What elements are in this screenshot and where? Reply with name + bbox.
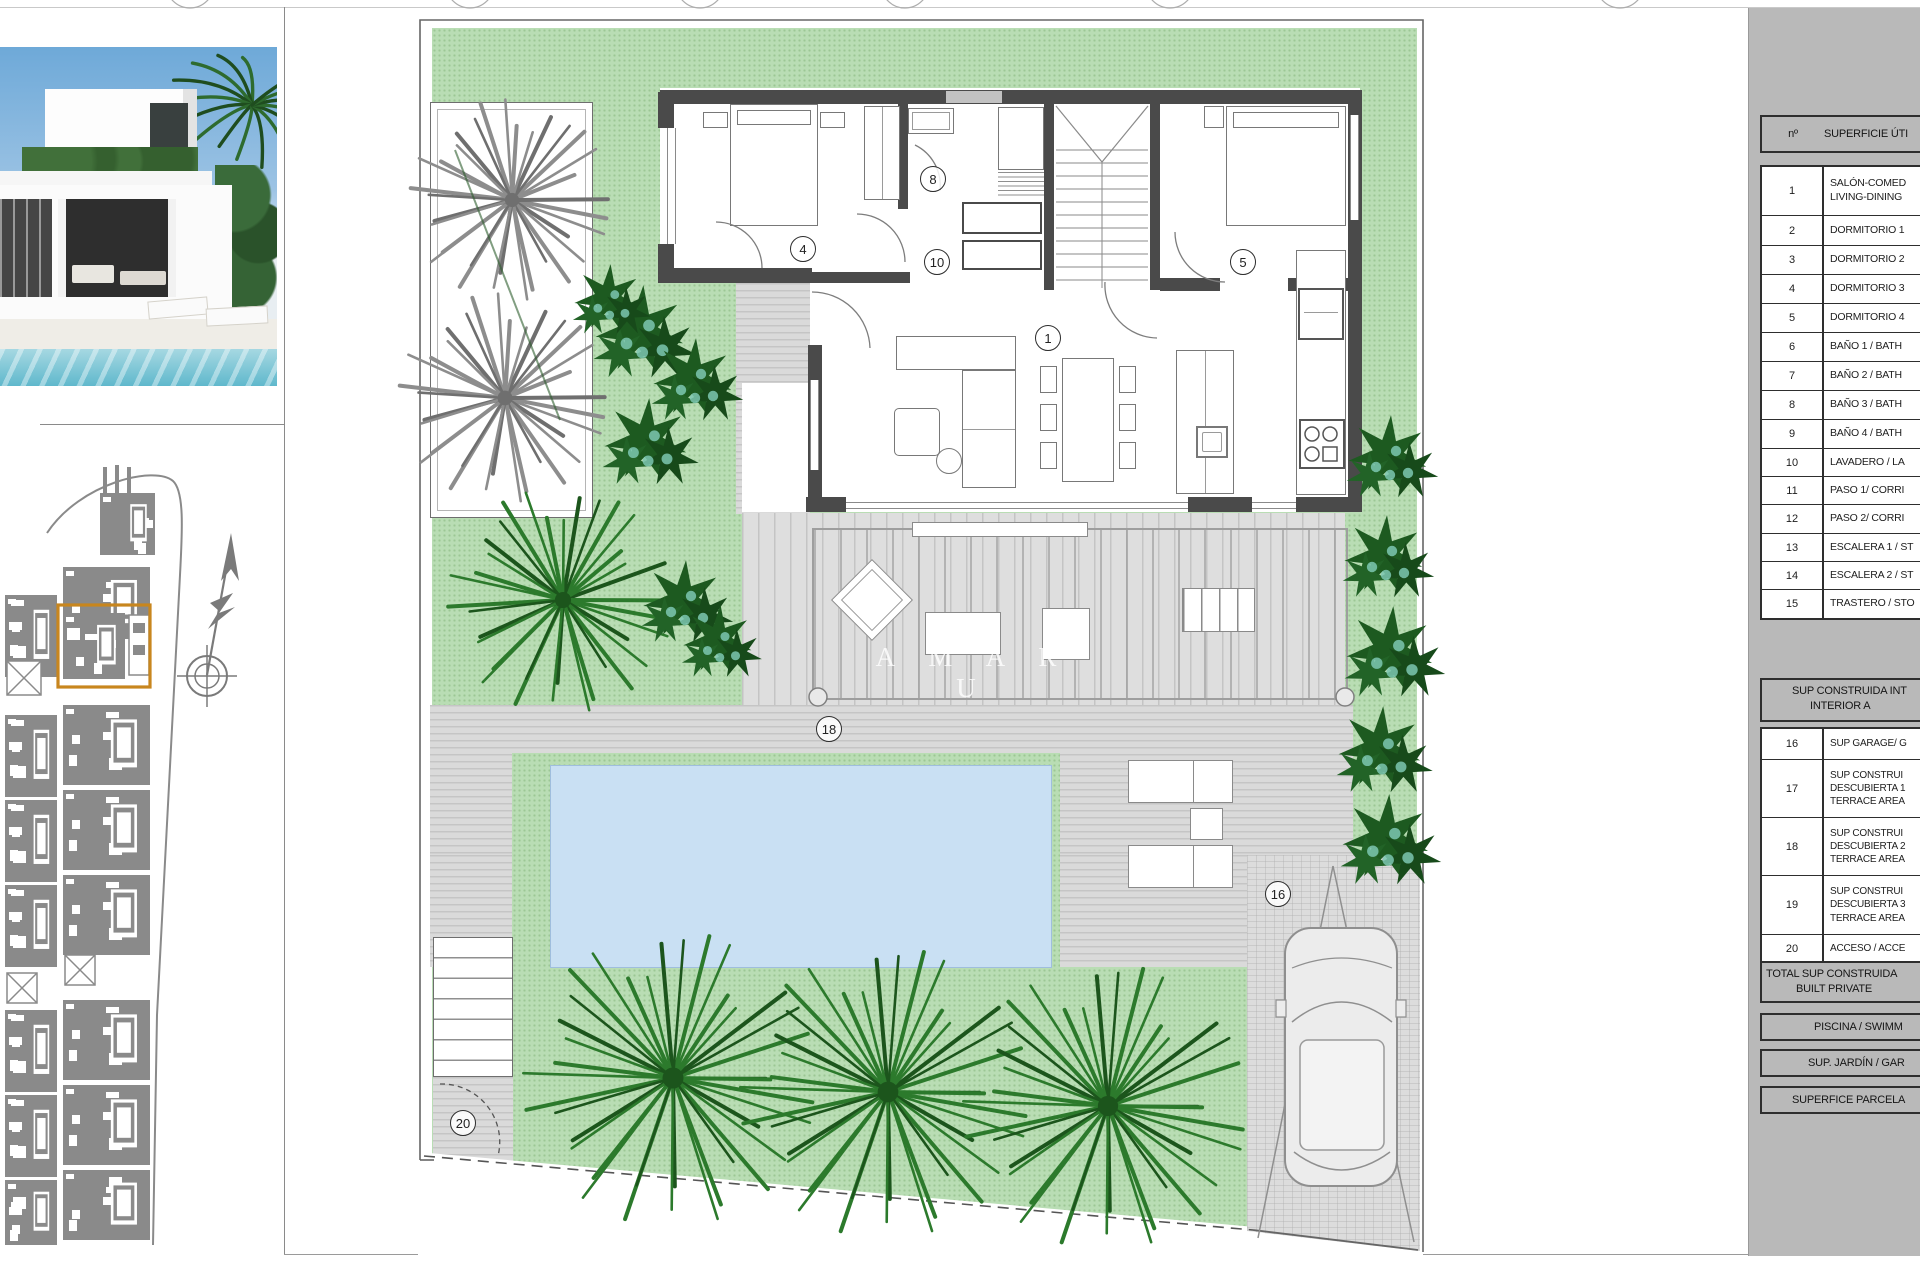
row-label: DORMITORIO 3 bbox=[1830, 282, 1920, 296]
row-label: SALÓN-COMED bbox=[1830, 177, 1920, 191]
table-header-title: SUPERFICIE ÚTI bbox=[1824, 127, 1908, 142]
wardrobe bbox=[864, 106, 900, 200]
room-number-label: 10 bbox=[924, 249, 950, 275]
row-label: TERRACE AREA bbox=[1830, 912, 1920, 925]
row-label: TERRACE AREA bbox=[1830, 853, 1920, 866]
armchair bbox=[894, 408, 940, 456]
row-number: 15 bbox=[1762, 590, 1824, 618]
row-number: 5 bbox=[1762, 304, 1824, 332]
row-number: 19 bbox=[1762, 876, 1824, 934]
box-line: SUP CONSTRUIDA INT bbox=[1762, 684, 1920, 699]
photo-terrace-sofa bbox=[72, 265, 114, 283]
table-row: 6BAÑO 1 / BATH bbox=[1762, 332, 1920, 361]
outdoor-dining-set bbox=[1182, 588, 1255, 632]
table-footer-box: PISCINA / SWIMM bbox=[1760, 1013, 1920, 1041]
table-row: 5DORMITORIO 4 bbox=[1762, 303, 1920, 332]
table-row: 19SUP CONSTRUIDESCUBIERTA 3TERRACE AREA bbox=[1762, 875, 1920, 934]
wall-stairs-east bbox=[1150, 104, 1160, 290]
table-row: 8BAÑO 3 / BATH bbox=[1762, 390, 1920, 419]
room-number-label: 16 bbox=[1265, 881, 1291, 907]
box-line: TOTAL SUP CONSTRUIDA bbox=[1762, 967, 1920, 982]
room-number-label: 4 bbox=[790, 236, 816, 262]
row-label: PASO 2/ CORRI bbox=[1830, 512, 1920, 526]
nightstand bbox=[1204, 106, 1224, 128]
table-row: 9BAÑO 4 / BATH bbox=[1762, 419, 1920, 448]
shower bbox=[998, 107, 1044, 170]
room-number-label: 20 bbox=[450, 1110, 476, 1136]
row-number: 12 bbox=[1762, 505, 1824, 533]
dining-chair bbox=[1119, 404, 1136, 431]
table-row: 3DORMITORIO 2 bbox=[1762, 245, 1920, 274]
table-total-box: TOTAL SUP CONSTRUIDABUILT PRIVATE bbox=[1760, 961, 1920, 1003]
table-row: 13ESCALERA 1 / ST bbox=[1762, 533, 1920, 561]
nightstand bbox=[820, 112, 845, 128]
table-row: 17SUP CONSTRUIDESCUBIERTA 1TERRACE AREA bbox=[1762, 759, 1920, 817]
row-label: TRASTERO / STO bbox=[1830, 597, 1920, 611]
table-section2-header: SUP CONSTRUIDA INTINTERIOR A bbox=[1760, 678, 1920, 722]
row-label: DORMITORIO 2 bbox=[1830, 253, 1920, 267]
sun-lounger bbox=[1128, 760, 1233, 803]
amaru-watermark: A M A R U bbox=[868, 642, 1078, 678]
row-label: SUP CONSTRUI bbox=[1830, 885, 1920, 898]
dining-chair bbox=[1040, 442, 1057, 469]
wc-closet bbox=[962, 202, 1042, 234]
window-living-west bbox=[810, 380, 819, 470]
planter-bed bbox=[430, 102, 593, 518]
table-header: nº SUPERFICIE ÚTI bbox=[1760, 115, 1920, 153]
room-number-label: 5 bbox=[1230, 249, 1256, 275]
glass-window bbox=[1252, 502, 1296, 509]
row-number: 14 bbox=[1762, 562, 1824, 589]
sheet-bottom-border bbox=[284, 1254, 1920, 1255]
swimming-pool bbox=[550, 765, 1052, 968]
table-row: 16SUP GARAGE/ G bbox=[1762, 729, 1920, 759]
kitchen-island bbox=[1176, 350, 1234, 494]
table-row: 11PASO 1/ CORRI bbox=[1762, 476, 1920, 504]
row-number: 8 bbox=[1762, 391, 1824, 419]
row-number: 16 bbox=[1762, 729, 1824, 759]
wall-north-opening bbox=[946, 91, 1002, 103]
bed-pillow bbox=[737, 110, 811, 125]
photo-column bbox=[58, 199, 66, 297]
row-label: DESCUBIERTA 1 bbox=[1830, 782, 1920, 795]
room-number-label: 18 bbox=[816, 716, 842, 742]
sofa-chaise bbox=[962, 370, 1016, 488]
nightstand bbox=[703, 112, 728, 128]
row-label: BAÑO 1 / BATH bbox=[1830, 340, 1920, 354]
row-number: 13 bbox=[1762, 534, 1824, 561]
row-label: ESCALERA 2 / ST bbox=[1830, 569, 1920, 583]
dining-table bbox=[1062, 358, 1114, 482]
row-label: SUP CONSTRUI bbox=[1830, 769, 1920, 782]
row-label: DESCUBIERTA 3 bbox=[1830, 898, 1920, 911]
table-row: 7BAÑO 2 / BATH bbox=[1762, 361, 1920, 390]
photo-glass-wall bbox=[0, 199, 52, 297]
bathroom-sink bbox=[908, 108, 954, 134]
wall-living-south-pier bbox=[806, 497, 846, 512]
table-row: 4DORMITORIO 3 bbox=[1762, 274, 1920, 303]
dining-chair bbox=[1040, 366, 1057, 393]
dining-chair bbox=[1119, 442, 1136, 469]
row-label: BAÑO 3 / BATH bbox=[1830, 398, 1920, 412]
row-label: SUP CONSTRUI bbox=[1830, 827, 1920, 840]
row-label: SUP GARAGE/ G bbox=[1830, 737, 1920, 750]
row-number: 9 bbox=[1762, 420, 1824, 448]
table-row: 12PASO 2/ CORRI bbox=[1762, 504, 1920, 533]
sheet-top-border bbox=[0, 7, 1920, 8]
row-label: ACCESO / ACCE bbox=[1830, 942, 1920, 955]
row-number: 7 bbox=[1762, 362, 1824, 390]
villa-photo bbox=[0, 47, 277, 386]
row-label: DESCUBIERTA 2 bbox=[1830, 840, 1920, 853]
table-row: 15TRASTERO / STO bbox=[1762, 589, 1920, 618]
row-number: 2 bbox=[1762, 216, 1824, 245]
photo-sun-lounger bbox=[206, 305, 269, 326]
dining-chair bbox=[1119, 366, 1136, 393]
row-label: LIVING-DINING bbox=[1830, 191, 1920, 205]
garden-steps bbox=[433, 937, 513, 1077]
room-number-label: 1 bbox=[1035, 325, 1061, 351]
row-number: 17 bbox=[1762, 760, 1824, 817]
row-label: PASO 1/ CORRI bbox=[1830, 484, 1920, 498]
entry-steps bbox=[736, 283, 810, 383]
row-number: 1 bbox=[1762, 167, 1824, 215]
sheet-left-border bbox=[284, 7, 285, 1255]
site-plan bbox=[5, 455, 255, 1250]
row-label: DORMITORIO 4 bbox=[1830, 311, 1920, 325]
row-number: 11 bbox=[1762, 477, 1824, 504]
wall-corridor-south bbox=[812, 272, 910, 283]
wall-stairs-west bbox=[1044, 104, 1054, 290]
wall-bedroom4-south bbox=[1160, 278, 1220, 291]
sliding-glass-door bbox=[846, 502, 1188, 509]
table-row: 14ESCALERA 2 / ST bbox=[1762, 561, 1920, 589]
row-number: 18 bbox=[1762, 818, 1824, 875]
garage-parking bbox=[1247, 855, 1420, 1255]
photo-hanging-plants bbox=[22, 147, 198, 173]
wall-west-pier bbox=[658, 92, 674, 128]
table-row: 10LAVADERO / LA bbox=[1762, 448, 1920, 476]
wall-living-south-pier bbox=[1188, 497, 1252, 512]
window-west bbox=[667, 128, 676, 244]
table-header-num: nº bbox=[1762, 127, 1824, 142]
table-row: 2DORMITORIO 1 bbox=[1762, 215, 1920, 245]
wall-bedroom3-south bbox=[660, 268, 812, 283]
bed-pillow bbox=[1233, 112, 1339, 128]
row-label: ESCALERA 1 / ST bbox=[1830, 541, 1920, 555]
wall-living-south-pier bbox=[1296, 497, 1362, 512]
wall-north bbox=[660, 90, 1360, 104]
row-number: 10 bbox=[1762, 449, 1824, 476]
row-label: DORMITORIO 1 bbox=[1830, 224, 1920, 238]
pergola-beam bbox=[912, 522, 1088, 537]
dining-chair bbox=[1040, 404, 1057, 431]
row-label: TERRACE AREA bbox=[1830, 795, 1920, 808]
photo-section-divider bbox=[40, 424, 285, 425]
table-row: 1SALÓN-COMEDLIVING-DINING bbox=[1762, 167, 1920, 215]
row-number: 4 bbox=[1762, 275, 1824, 303]
row-number: 20 bbox=[1762, 935, 1824, 962]
table-row: 20ACCESO / ACCE bbox=[1762, 934, 1920, 962]
sofa bbox=[896, 336, 1016, 370]
table-footer-box: SUPERFICE PARCELA bbox=[1760, 1086, 1920, 1114]
oven bbox=[1196, 426, 1228, 458]
row-label: BAÑO 2 / BATH bbox=[1830, 369, 1920, 383]
photo-balcony-slab bbox=[0, 171, 212, 185]
row-number: 6 bbox=[1762, 333, 1824, 361]
sun-lounger bbox=[1128, 845, 1233, 888]
box-line: BUILT PRIVATE bbox=[1762, 982, 1920, 997]
surface-table-rows: 1SALÓN-COMEDLIVING-DINING2DORMITORIO 13D… bbox=[1760, 165, 1920, 620]
side-table bbox=[1190, 808, 1223, 840]
photo-terrace-sofa bbox=[120, 271, 166, 285]
box-line: INTERIOR A bbox=[1762, 699, 1920, 714]
room-number-label: 8 bbox=[920, 166, 946, 192]
row-label: BAÑO 4 / BATH bbox=[1830, 427, 1920, 441]
table-footer-box: SUP. JARDÍN / GAR bbox=[1760, 1049, 1920, 1077]
row-label: LAVADERO / LA bbox=[1830, 456, 1920, 470]
laundry-closet bbox=[962, 240, 1042, 270]
north-arrow bbox=[177, 533, 239, 707]
stove-hob bbox=[1296, 416, 1356, 476]
side-table-round bbox=[936, 448, 962, 474]
table-row: 18SUP CONSTRUIDESCUBIERTA 2TERRACE AREA bbox=[1762, 817, 1920, 875]
photo-column bbox=[168, 199, 176, 297]
row-number: 3 bbox=[1762, 246, 1824, 274]
photo-pool bbox=[0, 349, 277, 386]
fridge bbox=[1298, 288, 1344, 340]
surface-table-rows2: 16SUP GARAGE/ G17SUP CONSTRUIDESCUBIERTA… bbox=[1760, 727, 1920, 964]
shower-hatch bbox=[998, 172, 1044, 196]
window-east bbox=[1350, 115, 1359, 220]
